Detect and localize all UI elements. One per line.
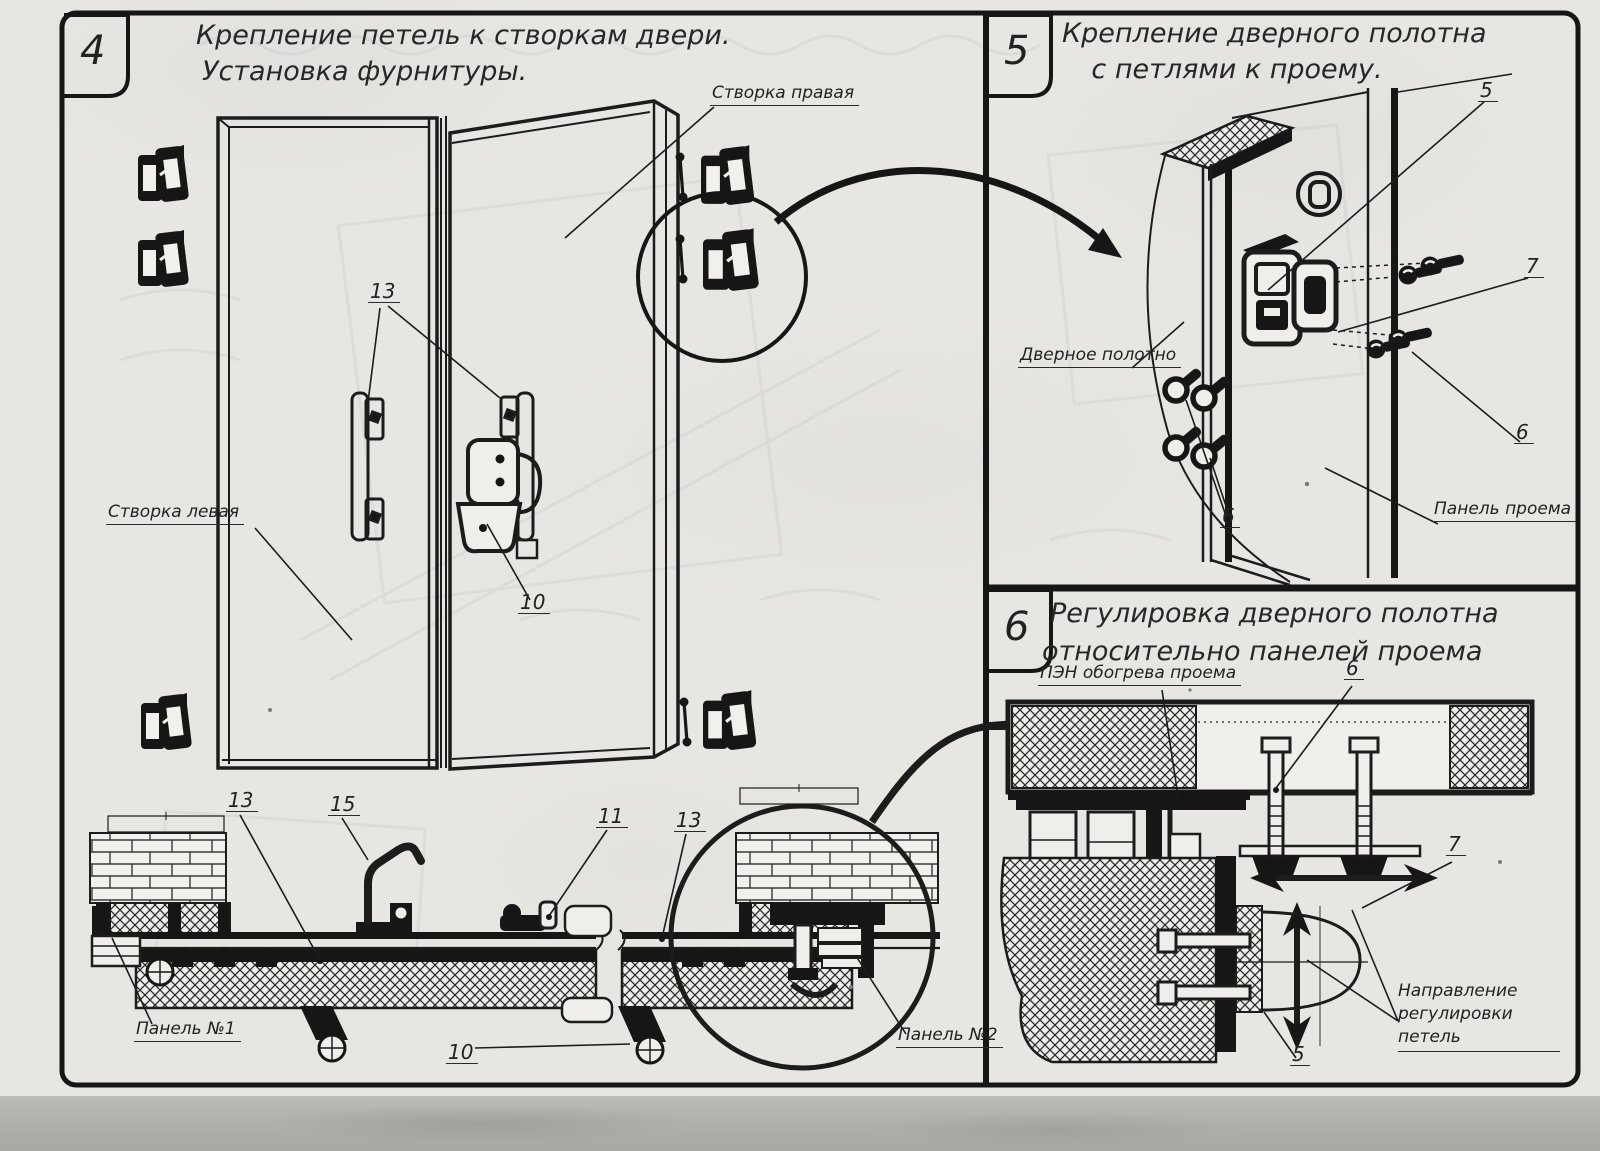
callout-bottom: 5 xyxy=(1290,1044,1310,1066)
scanned-assembly-sheet: 4 5 6 Крепление петель к створкам двери.… xyxy=(0,0,1600,1151)
callout-section-left: 13 xyxy=(226,790,258,812)
callout-section-mid: 13 xyxy=(674,810,706,832)
label-adjust-direction: Направление регулировки петель xyxy=(1398,980,1560,1052)
panel-6-title-line1: Регулировка дверного полотна xyxy=(1050,598,1470,630)
label-opening-panel: Панель проема xyxy=(1432,500,1576,522)
panel-4-title-line1: Крепление петель к створкам двери. xyxy=(196,20,731,52)
callout-hinge-body: 7 xyxy=(1446,834,1466,856)
panel-5-number: 5 xyxy=(1004,28,1029,74)
callout-section-foot: 10 xyxy=(446,1042,478,1064)
label-panel-no1: Панель №1 xyxy=(134,1020,241,1042)
label-left-leaf: Створка левая xyxy=(106,503,244,525)
callout-screws-right: 6 xyxy=(1514,422,1534,444)
panel-6-number: 6 xyxy=(1004,604,1029,650)
callout-mid-hinge: 11 xyxy=(596,806,628,828)
callout-hinge-top: 5 xyxy=(1478,80,1498,102)
panel-4-title-line2: Установка фурнитуры. xyxy=(202,56,527,88)
panel-5-title-line2: с петлями к проему. xyxy=(1027,54,1447,86)
callout-hinge-mid: 7 xyxy=(1524,256,1544,278)
scanner-edge-band xyxy=(0,1096,1600,1151)
callout-hinge-plates: 13 xyxy=(368,281,400,303)
panel-5-title-line1: Крепление дверного полотна xyxy=(1062,18,1482,50)
callout-bolt: 6 xyxy=(1344,658,1364,680)
label-panel-no2: Панель №2 xyxy=(896,1026,1003,1048)
callout-screws-left: 6 xyxy=(1220,506,1240,528)
callout-lock: 10 xyxy=(518,592,550,614)
label-door-leaf: Дверное полотно xyxy=(1018,346,1181,368)
callout-hook: 15 xyxy=(328,794,360,816)
panel-4-number: 4 xyxy=(80,28,105,74)
label-right-leaf: Створка правая xyxy=(710,84,859,106)
label-pen-heating: ПЭН обогрева проема xyxy=(1038,664,1241,686)
text-overlay: 4 5 6 Крепление петель к створкам двери.… xyxy=(0,0,1600,1151)
label-adjust-direction-line1: Направление регулировки xyxy=(1398,981,1518,1024)
label-adjust-direction-line2: петель xyxy=(1398,1027,1461,1047)
